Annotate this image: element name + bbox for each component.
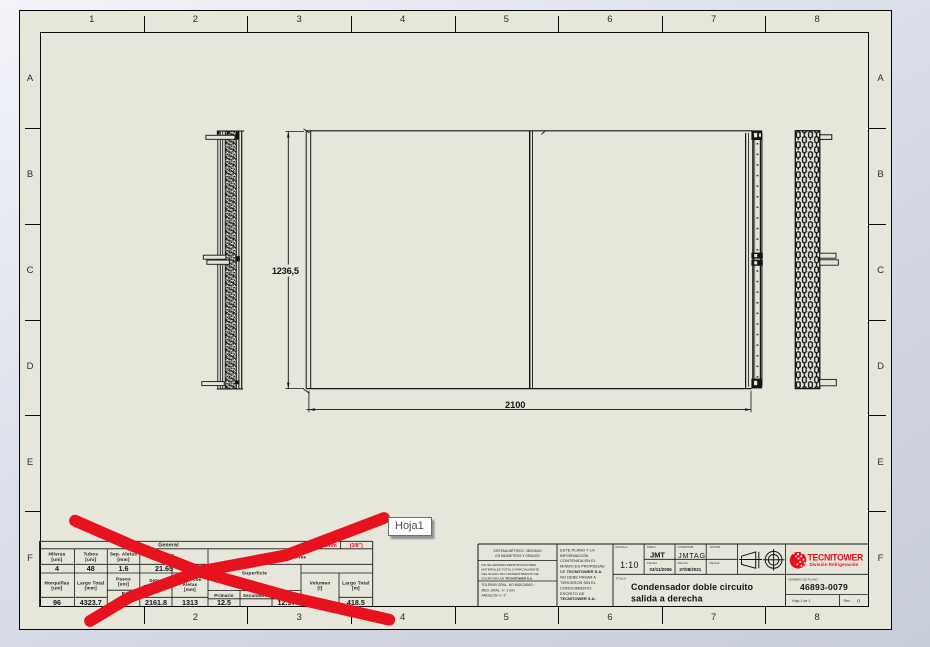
svg-text:03/11/2006: 03/11/2006 [649,567,672,572]
svg-text:EN MILÍMETROS Y GRADOS: EN MILÍMETROS Y GRADOS [495,554,540,558]
svg-text:ANGULOS +/- 1°: ANGULOS +/- 1° [482,594,508,598]
svg-text:MISMO ES PROPIEDAD: MISMO ES PROPIEDAD [560,564,605,569]
svg-text:[uni]: [uni] [51,585,62,590]
svg-text:TECNITOWER: TECNITOWER [808,552,864,562]
svg-text:CONOCIMIENTO: CONOCIMIENTO [560,585,591,590]
svg-text:12.5: 12.5 [217,598,231,607]
svg-text:Condensador doble circuito: Condensador doble circuito [631,582,754,592]
svg-text:[mm]: [mm] [117,557,129,562]
svg-text:2161.8: 2161.8 [145,598,167,607]
svg-text:[mm]: [mm] [184,587,196,592]
svg-text:MED. GRAL. +/- 1 mm: MED. GRAL. +/- 1 mm [482,588,515,592]
svg-text:DIBUJ.: DIBUJ. [647,545,657,549]
svg-text:[mm]: [mm] [85,585,97,590]
svg-text:[uni]: [uni] [51,557,62,562]
svg-text:48: 48 [87,564,95,573]
svg-text:46893-0079: 46893-0079 [800,582,848,592]
svg-text:[m]: [m] [352,585,360,590]
svg-text:JMT: JMT [650,551,665,560]
svg-text:TITULO: TITULO [616,576,627,580]
svg-text:División Refrigeración: División Refrigeración [810,562,859,567]
svg-text:FECHA: FECHA [710,561,720,565]
svg-text:1.6: 1.6 [119,564,129,573]
svg-text:2100: 2100 [505,400,525,410]
svg-text:FECHA: FECHA [647,561,657,565]
svg-text:1236,5: 1236,5 [272,266,299,276]
svg-text:APROB.: APROB. [710,545,722,549]
svg-text:NÚMERO DE PLANO: NÚMERO DE PLANO [789,576,819,581]
svg-text:(3/8"): (3/8") [350,543,363,549]
svg-text:General: General [158,542,179,548]
svg-text:CONTENIDA EN EL: CONTENIDA EN EL [560,558,597,563]
svg-text:[l]: [l] [317,585,322,590]
svg-text:INFORMACIÓN: INFORMACIÓN [560,553,589,558]
svg-text:FECHA: FECHA [678,561,688,565]
svg-text:Superficie: Superficie [242,571,267,576]
svg-text:TOLERAR GRAL. NO INDICADAS :: TOLERAR GRAL. NO INDICADAS : [482,583,535,587]
svg-text:1313: 1313 [182,598,198,607]
svg-text:ESCRITO DE: ESCRITO DE [560,591,585,596]
svg-text:ESCRITURA DE TECNITOWER S.A.: ESCRITURA DE TECNITOWER S.A. [482,576,533,580]
svg-text:JMTAG: JMTAG [678,551,706,560]
svg-text:ESTE PLANO Y LA: ESTE PLANO Y LA [560,547,595,552]
svg-text:0: 0 [857,598,860,603]
svg-text:TERCEROS SIN EL: TERCEROS SIN EL [560,580,597,585]
svg-text:4: 4 [55,564,59,573]
svg-text:4323.7: 4323.7 [80,598,102,607]
svg-text:SISTEMA MÉTRICO : MEDIDAS: SISTEMA MÉTRICO : MEDIDAS [493,548,542,553]
svg-text:salida a derecha: salida a derecha [631,593,704,603]
svg-text:MATERIALES TOTAL O PARCIALMENT: MATERIALES TOTAL O PARCIALMENTE [482,567,540,571]
svg-text:Rev.: Rev. [844,599,851,603]
svg-text:96: 96 [53,598,61,607]
svg-text:Hoja 1 de 1: Hoja 1 de 1 [792,599,810,603]
svg-text:1:10: 1:10 [620,560,639,570]
svg-text:TECNITOWER S.A.: TECNITOWER S.A. [560,596,596,601]
svg-text:NO DEBE PASAR A: NO DEBE PASAR A [560,575,596,580]
svg-text:[uni]: [uni] [118,581,129,586]
svg-text:ESCALA: ESCALA [616,545,628,549]
svg-text:DEL PLANO SIN CONSENTIMIENTO D: DEL PLANO SIN CONSENTIMIENTO DE [482,572,539,576]
svg-text:COMPROB.: COMPROB. [678,545,695,549]
svg-text:[uni]: [uni] [85,557,96,562]
svg-text:DE TECNITOWER S.A.: DE TECNITOWER S.A. [560,569,602,574]
svg-text:NO SE ADMITEN REPRODUCCIONES: NO SE ADMITEN REPRODUCCIONES [482,563,537,567]
svg-text:27/08/2021: 27/08/2021 [679,567,702,572]
